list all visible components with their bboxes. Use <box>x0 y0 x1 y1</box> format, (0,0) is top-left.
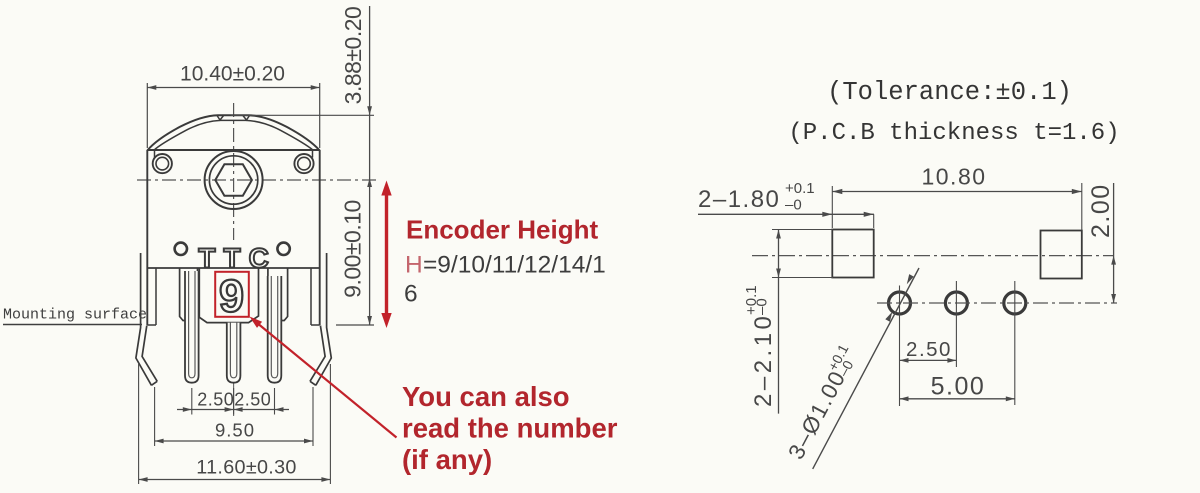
svg-text:You can also: You can also <box>402 381 570 412</box>
svg-text:–0: –0 <box>754 298 771 315</box>
svg-text:–0: –0 <box>785 197 802 214</box>
svg-text:2.50: 2.50 <box>906 338 952 361</box>
svg-text:(Tolerance:±0.1): (Tolerance:±0.1) <box>827 78 1072 107</box>
svg-text:10.40±0.20: 10.40±0.20 <box>180 63 285 86</box>
svg-text:3.88±0.20: 3.88±0.20 <box>340 7 366 105</box>
svg-text:Mounting surface: Mounting surface <box>3 307 147 324</box>
svg-text:2–1.80: 2–1.80 <box>698 186 780 213</box>
svg-text:9.50: 9.50 <box>215 420 255 441</box>
svg-text:2.502.50: 2.502.50 <box>197 390 271 410</box>
svg-text:(P.C.B thickness t=1.6): (P.C.B thickness t=1.6) <box>788 120 1119 147</box>
svg-text:10.80: 10.80 <box>921 164 986 190</box>
svg-text:read the number: read the number <box>402 413 618 444</box>
svg-text:(if any): (if any) <box>402 444 492 475</box>
svg-text:2–2.10: 2–2.10 <box>750 313 777 407</box>
svg-text:H: H <box>405 252 423 279</box>
svg-text:+0.1: +0.1 <box>785 180 815 197</box>
svg-text:6: 6 <box>404 281 418 308</box>
svg-text:11.60±0.30: 11.60±0.30 <box>196 457 296 479</box>
svg-text:2.00: 2.00 <box>1087 183 1115 238</box>
svg-text:5.00: 5.00 <box>931 373 986 401</box>
svg-text:Encoder Height: Encoder Height <box>406 215 598 245</box>
svg-text:=9/10/11/12/14/1: =9/10/11/12/14/1 <box>423 252 606 279</box>
svg-text:9: 9 <box>219 271 244 322</box>
svg-text:9.00±0.10: 9.00±0.10 <box>340 200 366 298</box>
